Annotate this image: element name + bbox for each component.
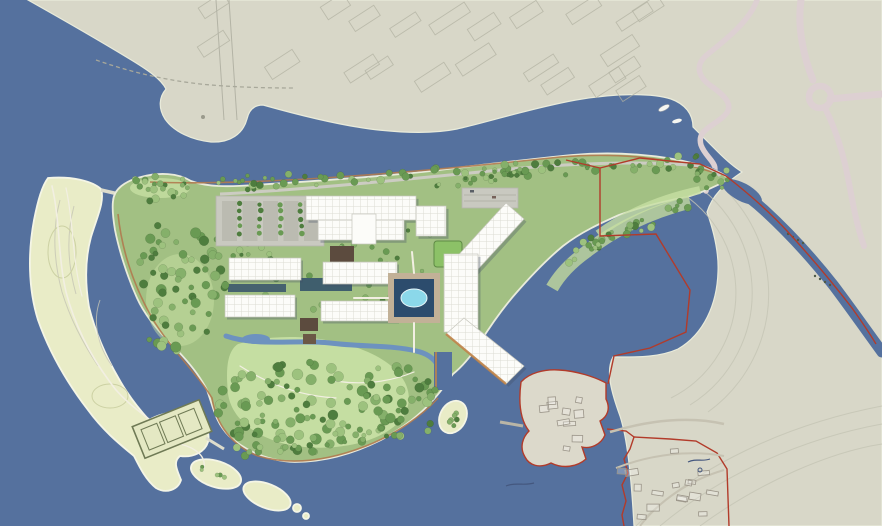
tree (573, 247, 579, 253)
house (574, 410, 584, 419)
tree (284, 384, 289, 389)
tree (303, 401, 310, 408)
tree (180, 177, 185, 182)
tree (325, 443, 330, 448)
tree (147, 337, 152, 342)
tree (318, 174, 324, 180)
tree (180, 183, 185, 188)
tree (647, 161, 653, 167)
tree (585, 166, 589, 170)
house (634, 484, 641, 491)
parking-tree (257, 224, 261, 228)
tree (285, 171, 292, 178)
tree (172, 286, 179, 293)
tree (152, 173, 159, 180)
tree (231, 253, 236, 258)
tree (521, 167, 529, 175)
tree (241, 401, 251, 411)
east-road (830, 94, 882, 99)
tree (252, 432, 257, 437)
tree (586, 242, 592, 248)
tree (245, 174, 249, 178)
tree (345, 424, 351, 430)
tree (288, 393, 295, 400)
tree (430, 166, 438, 174)
parking-tree (278, 216, 283, 221)
islet (293, 504, 301, 512)
tree (240, 178, 245, 183)
tree (256, 182, 263, 189)
tree (647, 224, 655, 232)
tree (295, 387, 301, 393)
tree (159, 289, 167, 297)
tree (270, 177, 275, 182)
dark-court (300, 318, 318, 331)
tree (637, 163, 642, 168)
tree (328, 376, 336, 384)
tree (415, 383, 424, 392)
tree (260, 413, 265, 418)
house (617, 468, 626, 474)
tree (386, 170, 393, 177)
parking-tree (278, 224, 282, 228)
tree (395, 256, 400, 261)
house (575, 397, 582, 404)
tree (452, 413, 457, 418)
tree (139, 280, 148, 289)
tree (159, 242, 166, 249)
tree (292, 369, 303, 380)
tree (408, 396, 416, 404)
promontory-marker (201, 115, 205, 119)
tree (675, 204, 679, 208)
tree (263, 176, 267, 180)
tree (627, 222, 634, 229)
tree (631, 163, 635, 167)
tree (377, 176, 385, 184)
tree (699, 169, 703, 173)
tree (170, 342, 181, 353)
tree (137, 259, 144, 266)
tree (416, 396, 421, 401)
tree (137, 184, 143, 190)
tree (333, 431, 338, 436)
tree (190, 228, 201, 239)
tree (174, 239, 179, 244)
tree (531, 160, 539, 168)
dark-court (330, 246, 354, 264)
tree (718, 179, 725, 186)
tree (453, 168, 460, 175)
tree (191, 298, 201, 308)
house (698, 470, 710, 475)
tree (150, 186, 158, 194)
tree (383, 248, 389, 254)
tree (310, 434, 317, 441)
tree (246, 449, 252, 455)
tree (693, 155, 698, 160)
tree (384, 434, 389, 439)
tree (235, 421, 240, 426)
tree (599, 238, 605, 244)
tree (159, 264, 168, 273)
tree (379, 426, 384, 431)
tree (447, 419, 452, 424)
tree (233, 444, 241, 452)
tree (674, 152, 682, 160)
tree (150, 270, 156, 276)
parking-tree (237, 209, 242, 214)
tree (302, 174, 307, 179)
tree (420, 269, 424, 273)
tree (267, 251, 272, 256)
tree (189, 285, 194, 290)
tree (218, 386, 227, 395)
house (672, 482, 679, 488)
tree (256, 400, 262, 406)
tree (665, 205, 672, 212)
master-plan-canvas (0, 0, 882, 526)
tree (222, 475, 227, 480)
tree (401, 407, 409, 415)
tree (320, 417, 326, 423)
tree (666, 166, 672, 172)
tree (246, 371, 256, 381)
house (689, 492, 701, 501)
tree (154, 222, 161, 229)
tree (185, 186, 190, 191)
parking-tree (278, 202, 283, 207)
tree (712, 172, 717, 177)
tree (174, 323, 183, 332)
tree (274, 379, 280, 385)
tree (343, 440, 347, 444)
tree (236, 247, 243, 254)
tree (306, 359, 313, 366)
tree (328, 410, 338, 420)
tree (240, 418, 249, 427)
tree (639, 229, 643, 233)
tree (150, 314, 157, 321)
tree (363, 393, 369, 399)
parking-tree (299, 224, 304, 229)
tree (286, 436, 294, 444)
tree (142, 178, 148, 184)
parking-tree (257, 231, 262, 236)
tree (264, 396, 273, 405)
tree (202, 281, 210, 289)
tree (351, 178, 358, 185)
tree (572, 257, 577, 262)
tree (171, 194, 176, 199)
tree (344, 398, 351, 405)
tree (425, 428, 432, 435)
tree (222, 282, 230, 290)
tree (215, 253, 222, 260)
tree (283, 444, 289, 450)
tree (396, 408, 401, 413)
tree (397, 416, 404, 423)
dark-court (303, 334, 316, 344)
parking-tree (298, 209, 303, 214)
tree (677, 198, 683, 204)
tree (161, 229, 170, 238)
tree (257, 444, 263, 450)
tree (652, 166, 660, 174)
tree (147, 198, 154, 205)
house (562, 408, 571, 415)
tree (358, 401, 368, 411)
tree (383, 396, 391, 404)
tree (202, 267, 208, 273)
tree (588, 235, 595, 242)
tree (397, 399, 406, 408)
tree (347, 384, 353, 390)
islet (303, 513, 309, 519)
tree (489, 178, 494, 183)
tree (427, 420, 434, 427)
tree (277, 448, 283, 454)
tree (157, 181, 163, 187)
tree (167, 267, 176, 276)
tree (307, 442, 313, 448)
tree (153, 251, 158, 256)
tree (437, 183, 441, 187)
tree (326, 363, 336, 373)
tree (376, 366, 381, 371)
tree (175, 276, 181, 282)
tree (366, 178, 370, 182)
tree (274, 436, 281, 443)
tree (254, 418, 261, 425)
parking-tree (237, 201, 242, 206)
tree (326, 419, 335, 428)
hotel-connector (352, 214, 376, 244)
house (572, 435, 583, 442)
tree (513, 161, 518, 166)
pool (401, 289, 427, 307)
tree (373, 394, 380, 401)
tree (292, 443, 297, 448)
tree (238, 371, 246, 379)
tree (684, 204, 691, 211)
tree (326, 398, 336, 408)
tree (151, 307, 158, 314)
tree (502, 171, 508, 177)
parking-tree (257, 217, 262, 222)
tree (296, 414, 306, 424)
tree (190, 310, 195, 315)
parking-tree (298, 202, 303, 207)
house (699, 512, 707, 516)
tree (211, 271, 221, 281)
tree (280, 180, 288, 188)
tree (396, 386, 405, 395)
tree (482, 167, 486, 171)
tree (199, 236, 209, 246)
tree (563, 172, 568, 177)
tree (406, 229, 410, 233)
house (637, 514, 646, 519)
tree (220, 177, 225, 182)
tree (314, 183, 318, 187)
tree (547, 165, 554, 172)
tree (693, 176, 700, 183)
tree (456, 183, 461, 188)
tree (353, 432, 359, 438)
tree (193, 267, 200, 274)
tree (169, 304, 176, 311)
tree (432, 387, 439, 394)
parking-tree (238, 223, 243, 228)
tree (310, 414, 315, 419)
parking-tree (298, 217, 303, 222)
tree (265, 378, 271, 384)
parking-tree (299, 231, 305, 237)
parking-tree (258, 208, 264, 214)
tree (452, 423, 457, 428)
tree (306, 374, 317, 385)
parking-tree (237, 216, 242, 221)
tree (294, 407, 299, 412)
tree (565, 259, 572, 266)
house (685, 480, 692, 486)
tree (386, 413, 396, 423)
tree (215, 473, 219, 477)
tree (273, 419, 278, 424)
tree (461, 169, 468, 176)
tree (723, 167, 729, 173)
tree (370, 245, 375, 250)
tree (310, 306, 316, 312)
tree (204, 329, 210, 335)
tree (480, 171, 485, 176)
tree (493, 178, 497, 182)
tree (200, 468, 204, 472)
tree (200, 255, 209, 264)
tree (413, 377, 418, 382)
site-plan-rendering (0, 0, 882, 526)
tree (182, 299, 188, 305)
tree (188, 257, 194, 263)
parking-tree (237, 232, 242, 237)
tree (366, 430, 372, 436)
tree (396, 432, 403, 439)
tree (286, 418, 296, 428)
parking-tree (278, 230, 283, 235)
tree (357, 427, 363, 433)
tree (189, 325, 196, 332)
tree (554, 159, 561, 166)
tree (157, 341, 167, 351)
tree (214, 409, 223, 418)
tree (464, 177, 467, 180)
house (548, 397, 556, 405)
tree (179, 250, 187, 258)
tree (234, 432, 243, 441)
tree (220, 402, 227, 409)
tree (294, 430, 304, 440)
tree (489, 174, 494, 179)
tree (427, 393, 435, 401)
house (670, 449, 678, 454)
tree (206, 311, 212, 317)
tree (518, 167, 523, 172)
tree (623, 230, 631, 238)
tree (230, 383, 239, 392)
tree (404, 365, 412, 373)
tree (273, 362, 283, 372)
tree (720, 186, 724, 190)
tree (501, 161, 509, 169)
tree (515, 173, 520, 178)
tree (245, 187, 250, 192)
parking-tree (278, 208, 283, 213)
tree (273, 183, 279, 189)
tree (402, 173, 410, 181)
house (647, 504, 659, 511)
tree (374, 407, 383, 416)
house (563, 446, 570, 451)
tree (640, 218, 644, 222)
tree (493, 170, 497, 174)
tree (140, 252, 147, 259)
tree (145, 234, 155, 244)
tree (394, 368, 403, 377)
tree (468, 181, 473, 186)
tree (278, 395, 285, 402)
tree (208, 290, 217, 299)
tree (133, 177, 140, 184)
tree (368, 381, 376, 389)
tree (153, 298, 162, 307)
tree (425, 378, 432, 385)
tree (181, 193, 187, 199)
tree (337, 172, 345, 180)
parking-tree (257, 203, 261, 207)
tree (292, 179, 298, 185)
pool-plaza (388, 273, 440, 323)
tree (216, 181, 220, 185)
tree (362, 433, 366, 437)
house (539, 405, 549, 413)
tree (704, 185, 709, 190)
tree (383, 384, 390, 391)
tree (246, 252, 250, 256)
tree (162, 322, 169, 329)
